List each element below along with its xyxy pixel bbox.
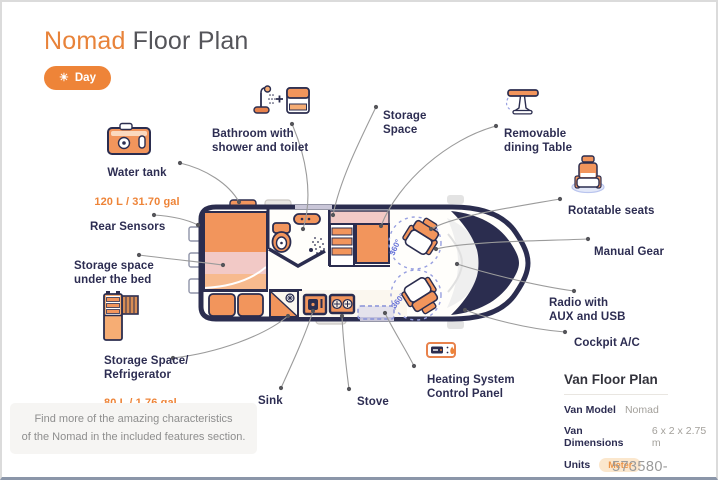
- van-dimensions-value: 6 x 2 x 2.75 m: [652, 425, 716, 449]
- water-tank-capacity: 120 L / 31.70 gal: [92, 196, 182, 209]
- toilet-icon: [287, 88, 309, 113]
- bathroom-shelf: [294, 214, 320, 224]
- callout-sink: Sink: [258, 382, 283, 422]
- bathroom-label: Bathroom with shower and toilet: [212, 128, 308, 155]
- side-mirror-left: [447, 195, 464, 204]
- water-tank-icon: [108, 124, 150, 155]
- storage-under-bed-label: Storage space under the bed: [74, 260, 154, 287]
- callout-stove: Stove: [357, 383, 389, 423]
- callout-storage-under-bed: Storage space under the bed: [74, 247, 154, 300]
- heating-panel-icon: [427, 343, 455, 357]
- plus-icon: [276, 96, 283, 103]
- van-dimensions-label: Van Dimensions: [564, 425, 643, 449]
- callout-removable-table: Removable dining Table: [504, 115, 572, 168]
- heating-panel-location: [358, 306, 394, 319]
- callout-cockpit-ac: Cockpit A/C: [574, 324, 640, 364]
- fridge-label: Storage Space/ Refrigerator: [104, 355, 189, 382]
- wardrobe-dining-area: [329, 210, 390, 266]
- manual-gear-label: Manual Gear: [594, 246, 664, 259]
- radio-label: Radio with AUX and USB: [549, 297, 626, 324]
- heating-label: Heating System Control Panel: [427, 374, 515, 401]
- bench-cushion: [209, 294, 235, 316]
- callout-rear-sensors: Rear Sensors: [90, 208, 165, 248]
- van-dimensions-row: Van Dimensions 6 x 2 x 2.75 m: [564, 425, 716, 449]
- units-label: Units: [564, 459, 590, 471]
- van-info-title: Van Floor Plan: [564, 372, 668, 395]
- van-model-label: Van Model: [564, 404, 616, 416]
- shower-icon: [254, 86, 276, 113]
- rotatable-seats-label: Rotatable seats: [568, 205, 655, 218]
- watermark-number: 573580-21189770: [612, 459, 716, 480]
- callout-storage-space: Storage Space: [383, 97, 427, 150]
- nomad-floorplan-page: NomadFloor Plan ☀ Day: [0, 0, 718, 480]
- sink-label: Sink: [258, 395, 283, 408]
- van-info-panel: Van Floor Plan Van Model Nomad Van Dimen…: [564, 372, 716, 472]
- storage-space-label: Storage Space: [383, 110, 427, 137]
- under-bed-storage-zone: [204, 252, 267, 274]
- dining-table-icon: [507, 90, 538, 114]
- callout-rotatable-seats: Rotatable seats: [568, 192, 655, 232]
- van-model-value: Nomad: [625, 404, 659, 416]
- rear-sensors-label: Rear Sensors: [90, 221, 165, 234]
- bench-cushion: [238, 294, 263, 316]
- callout-manual-gear: Manual Gear: [594, 233, 664, 273]
- removable-table-label: Removable dining Table: [504, 128, 572, 155]
- van-model-row: Van Model Nomad: [564, 404, 716, 416]
- callout-heating: Heating System Control Panel: [427, 361, 515, 414]
- cockpit-ac-label: Cockpit A/C: [574, 337, 640, 350]
- water-tank-label: Water tank: [92, 167, 182, 180]
- rotatable-seat-icon: [572, 156, 604, 193]
- features-note: Find more of the amazing characteristics…: [10, 403, 257, 454]
- stove-label: Stove: [357, 396, 389, 409]
- dining-table-top: [356, 224, 389, 263]
- callout-bathroom: Bathroom with shower and toilet: [212, 115, 308, 168]
